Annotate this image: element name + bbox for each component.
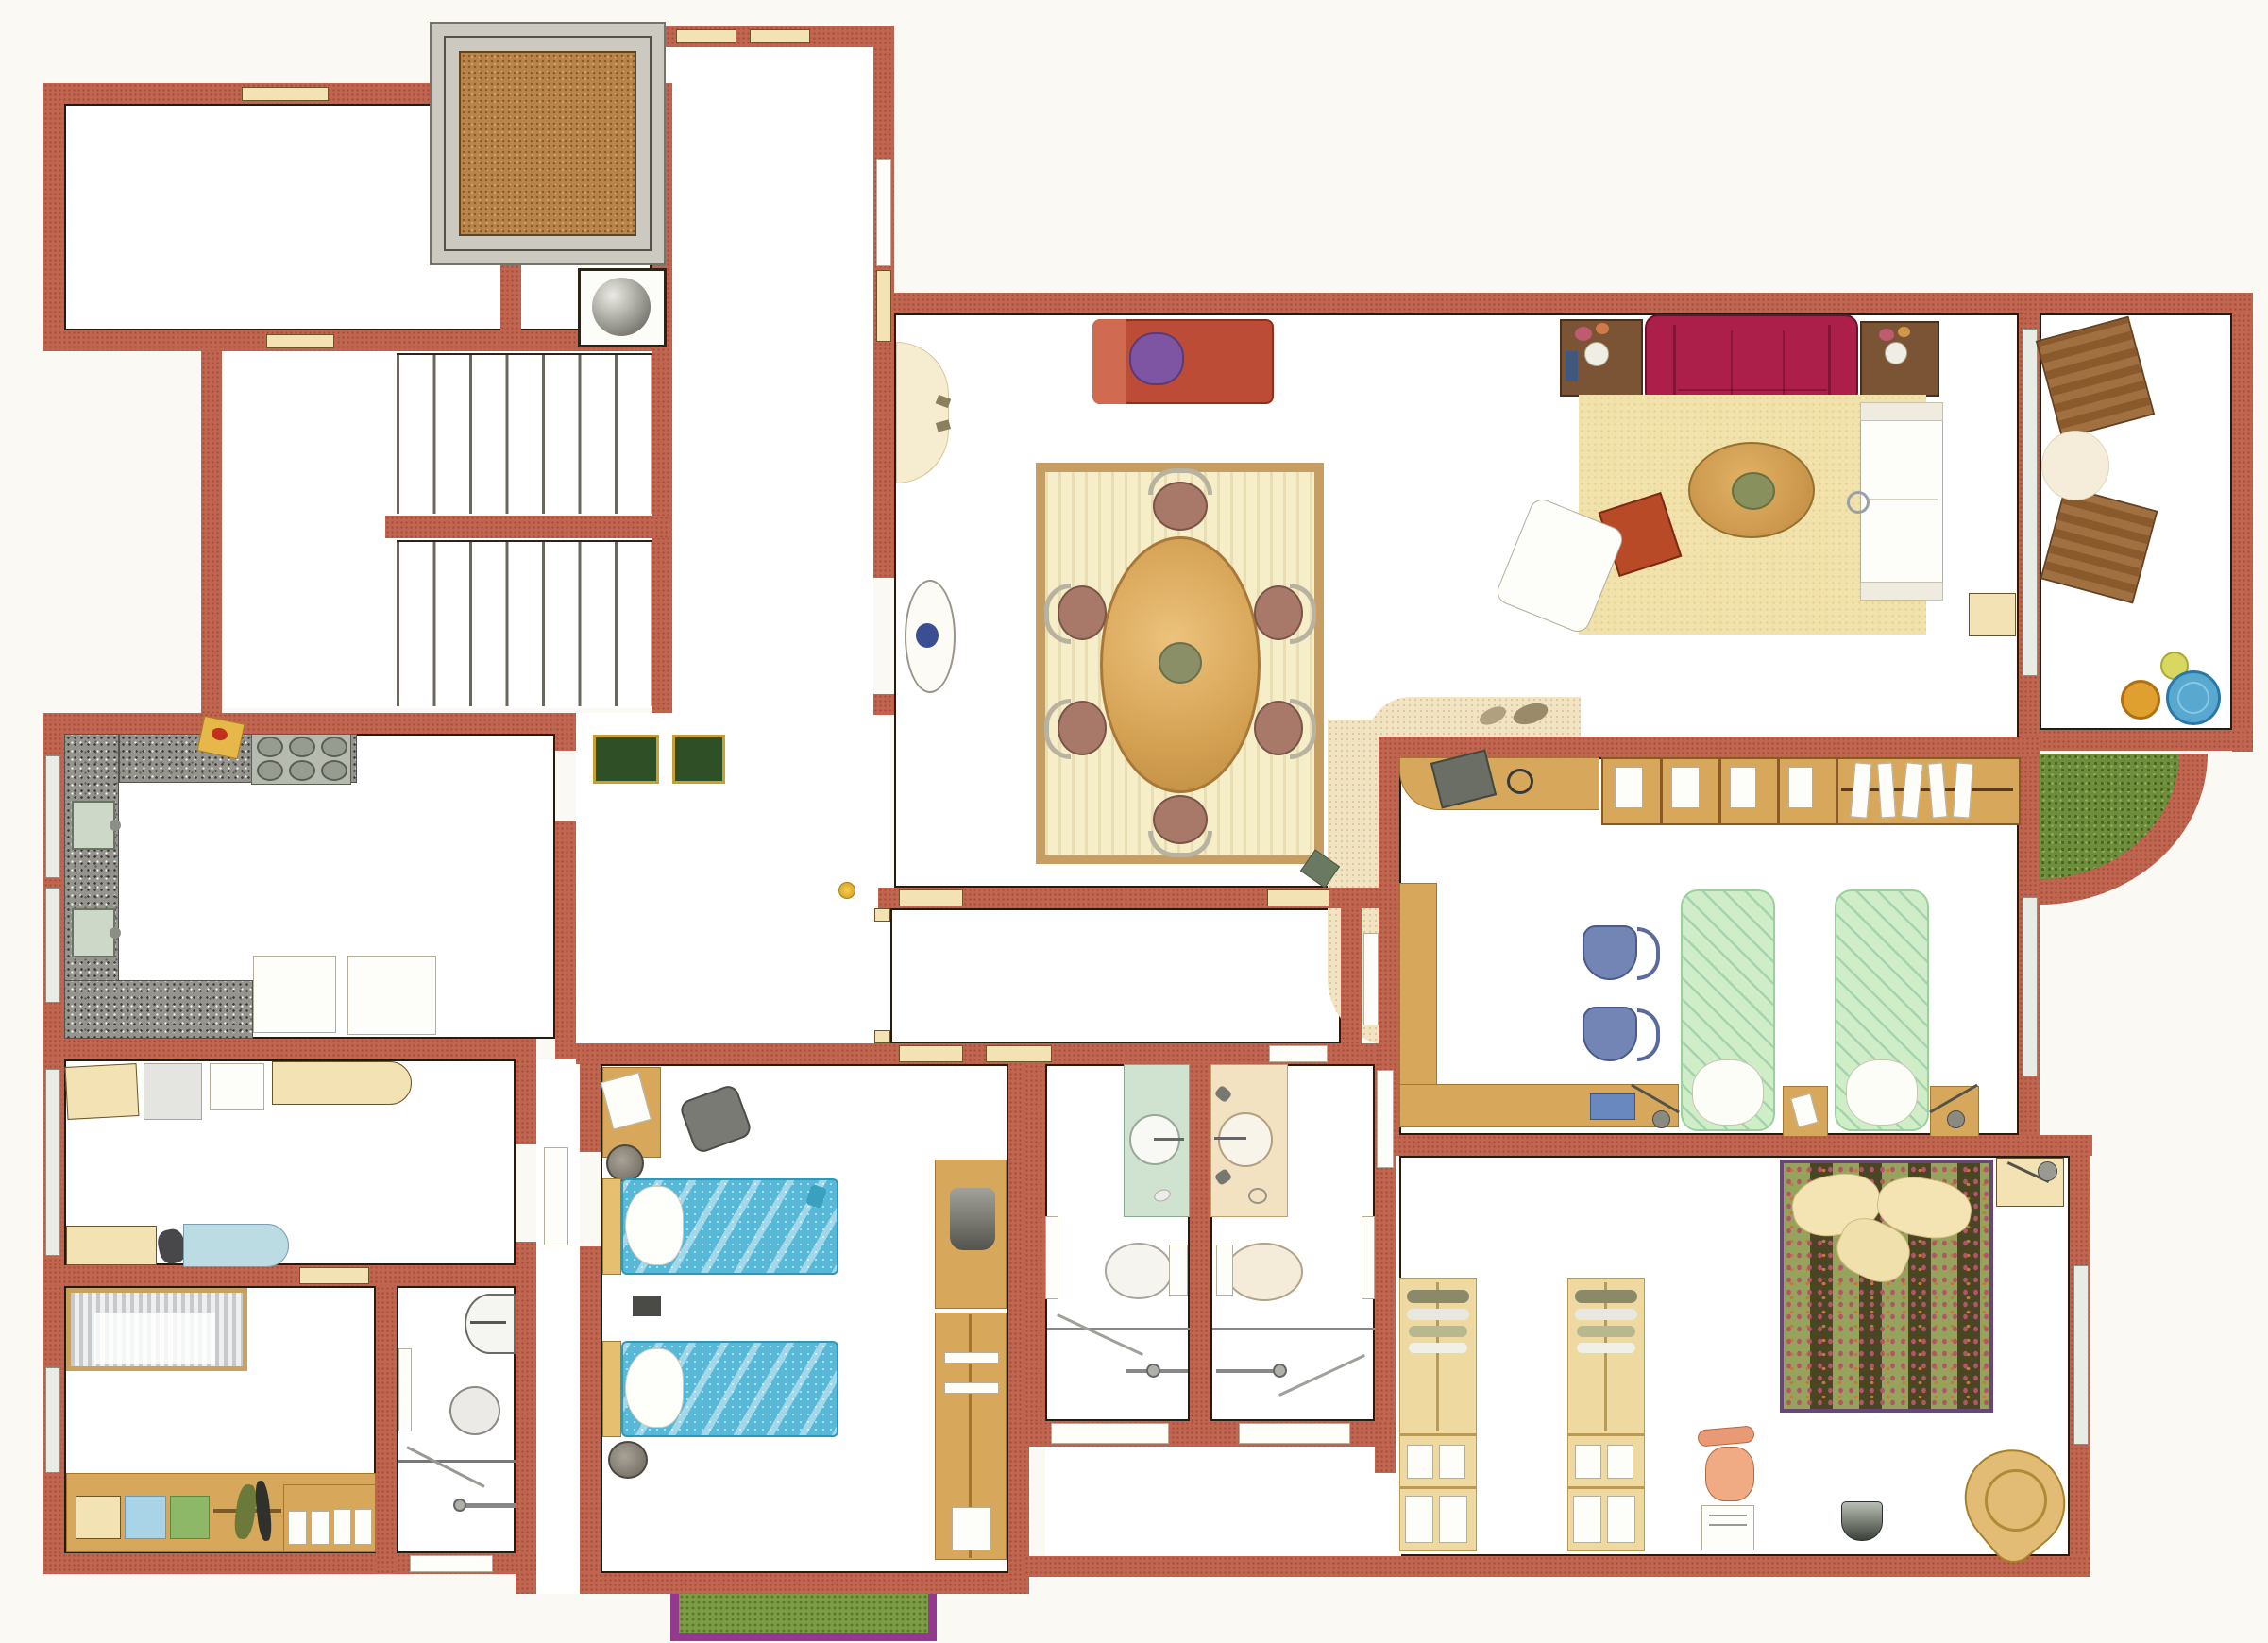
paper-line <box>1709 1524 1747 1526</box>
floor-cushion <box>593 735 659 784</box>
hanging-garment <box>1575 1290 1637 1303</box>
stair-landing-wall <box>385 516 670 538</box>
daybed-cushion <box>1129 332 1184 385</box>
dresser-shelf <box>944 1352 999 1364</box>
shelf-books <box>1671 767 1700 808</box>
window <box>750 29 810 43</box>
drawing-desk <box>1701 1505 1754 1550</box>
stove-burner <box>257 737 283 757</box>
guest-bed-blanket <box>94 1313 215 1364</box>
laundry-cabinet <box>210 1063 264 1110</box>
drinking-glass <box>1847 491 1870 514</box>
door <box>1377 1070 1394 1168</box>
wall-segment <box>201 351 222 713</box>
sofa-white <box>1860 402 1943 601</box>
flower-pot <box>838 882 855 899</box>
wall-segment <box>2019 730 2253 751</box>
floor-mat <box>66 1226 157 1265</box>
sofa-white-seam <box>1866 499 1938 500</box>
lift-motor-sphere <box>592 278 651 336</box>
coffee-table-centerpiece <box>1732 472 1775 510</box>
pillow <box>625 1186 684 1265</box>
daybed-arm <box>1092 319 1126 404</box>
hanging-garment <box>1409 1343 1467 1353</box>
wardrobe-shelf-line <box>1399 1486 1477 1489</box>
door-sill <box>899 889 963 906</box>
wall-segment <box>555 821 576 1059</box>
wall-segment <box>1024 1556 2090 1577</box>
books <box>1566 351 1578 381</box>
door-sill <box>986 1045 1052 1062</box>
door-sill <box>1267 889 1329 906</box>
sofa-seam <box>1731 330 1733 397</box>
door <box>1269 1045 1328 1062</box>
bath-shelf <box>1045 1216 1058 1299</box>
hanging-garment <box>1407 1290 1469 1303</box>
wall-segment <box>516 1059 536 1144</box>
entrance-doormat <box>670 1594 937 1641</box>
wall-segment <box>2232 313 2253 752</box>
wall-segment <box>873 694 894 715</box>
shower-line <box>1212 1328 1375 1330</box>
closet-stack <box>76 1496 121 1539</box>
towel-rod <box>461 1503 516 1508</box>
sofa-seam <box>1783 330 1785 397</box>
faucet <box>110 927 121 939</box>
desk-bottom <box>1399 1084 1679 1127</box>
reading-lamp <box>1652 1110 1670 1128</box>
wardrobe-box <box>1573 1496 1601 1543</box>
dresser-shelf <box>944 1382 999 1394</box>
wall-segment <box>873 313 894 578</box>
wall-segment <box>1379 1135 2092 1156</box>
master-room-ext-floor <box>1045 1447 1401 1556</box>
laundry-cabinet <box>65 1063 140 1120</box>
shelf-divider <box>1660 759 1663 823</box>
door <box>1051 1423 1169 1444</box>
tv-unit <box>950 1188 995 1250</box>
bed-headboard <box>602 1341 621 1437</box>
bath-shelf <box>398 1348 412 1431</box>
corridor-floor <box>890 908 1341 1043</box>
shelf-books <box>1788 767 1813 808</box>
sofa-seam <box>1673 325 1676 397</box>
shelf-divider <box>1777 759 1780 823</box>
plant-pot-inner <box>2177 682 2209 714</box>
window <box>45 755 60 878</box>
shelf-books <box>1615 767 1643 808</box>
elevator-cab <box>459 51 636 236</box>
pillow <box>1846 1059 1918 1126</box>
hanging-garment <box>1409 1326 1467 1337</box>
bath-sink-round <box>1218 1112 1273 1167</box>
wall-segment <box>873 293 2253 313</box>
ironing-board <box>183 1224 289 1267</box>
hanging-garment <box>1577 1326 1635 1337</box>
closet-stack <box>125 1496 166 1539</box>
entry-strip-floor <box>666 47 873 313</box>
office-chair-blue <box>1583 1007 1637 1061</box>
window <box>676 29 736 43</box>
reading-lamp <box>1947 1110 1965 1128</box>
pillow <box>1692 1059 1764 1126</box>
wall-segment <box>43 1553 397 1574</box>
door <box>876 159 891 266</box>
paper-line <box>1709 1515 1747 1516</box>
stove-burner <box>321 737 347 757</box>
closet-box <box>288 1511 307 1545</box>
plant-vase <box>1841 1501 1883 1541</box>
door-sill <box>874 1030 890 1043</box>
sofa-white-arm <box>1860 402 1943 421</box>
flowers <box>1898 327 1910 337</box>
stove-burner <box>257 760 283 781</box>
wall-segment <box>1341 908 1362 1043</box>
laundry-counter <box>272 1061 412 1105</box>
toilet-tank <box>1169 1245 1188 1296</box>
wardrobe-shelf-line <box>1399 1433 1477 1436</box>
bath-shelf <box>1362 1216 1375 1299</box>
kitchen-counter-left <box>64 734 119 1017</box>
door <box>1239 1423 1350 1444</box>
stool <box>606 1144 644 1182</box>
balcony-glass-door <box>2023 329 2038 676</box>
wardrobe-box <box>1439 1496 1467 1543</box>
pillow <box>625 1348 684 1428</box>
upper-hall-floor <box>672 313 873 713</box>
stove-burner <box>321 760 347 781</box>
console-vase <box>916 623 939 648</box>
wall-segment <box>43 83 64 351</box>
window <box>45 888 60 1003</box>
wardrobe-rod <box>1604 1282 1607 1431</box>
study-desk <box>1399 757 1599 810</box>
closet-stack <box>170 1496 210 1539</box>
vase <box>1584 342 1609 366</box>
door-sill <box>299 1267 369 1284</box>
wall-segment <box>580 1573 1029 1594</box>
bed-headboard <box>602 1178 621 1275</box>
reading-lamp <box>2038 1161 2057 1181</box>
toilet-tank <box>1216 1245 1233 1296</box>
flowers <box>1596 323 1609 334</box>
wardrobe-box <box>1439 1445 1465 1479</box>
wardrobe-rod <box>1436 1282 1439 1431</box>
flowers <box>1879 329 1894 341</box>
toilet <box>1105 1243 1173 1299</box>
balcony-table <box>2041 431 2109 500</box>
wardrobe-box <box>1575 1445 1601 1479</box>
dresser-box <box>952 1507 991 1550</box>
desk-chair-seat <box>1705 1447 1754 1501</box>
wall-segment <box>516 1242 536 1594</box>
door <box>410 1555 493 1572</box>
wall-segment <box>43 1039 536 1059</box>
floor-plan <box>0 0 2268 1643</box>
refrigerator <box>347 956 436 1035</box>
faucet <box>110 820 121 831</box>
wardrobe-box <box>1405 1496 1433 1543</box>
staircase-upper-flight <box>397 353 652 514</box>
window <box>266 334 334 348</box>
closet-box <box>333 1509 351 1545</box>
toilet <box>449 1386 500 1435</box>
shower-knob <box>453 1499 466 1512</box>
window <box>242 87 329 101</box>
wardrobe-shelf-line <box>1567 1486 1645 1489</box>
closet-box <box>354 1509 372 1545</box>
plant-pot <box>2121 680 2160 720</box>
towel-rod <box>1216 1369 1277 1373</box>
toiletry-ring <box>1248 1188 1267 1204</box>
hanging-garment <box>1407 1309 1469 1320</box>
shower-knob <box>1146 1364 1160 1378</box>
office-chair-blue <box>1583 925 1637 980</box>
kitchen-counter-bottom <box>64 980 253 1039</box>
closet-box <box>311 1511 330 1545</box>
sofa-white-arm <box>1860 582 1943 601</box>
vase <box>1885 342 1907 364</box>
nightstand <box>633 1296 661 1316</box>
hanging-garment <box>1577 1343 1635 1353</box>
window <box>2073 1265 2089 1445</box>
wall-segment <box>1024 1064 1045 1447</box>
wall-segment <box>376 1286 397 1574</box>
dishwasher <box>253 956 336 1033</box>
wardrobe-box <box>1607 1496 1635 1543</box>
faucet-line <box>1154 1138 1184 1141</box>
stool <box>608 1441 648 1479</box>
staircase-lower-flight <box>397 540 652 706</box>
wardrobe-box <box>1607 1445 1633 1479</box>
stove-burner <box>289 760 315 781</box>
table-centerpiece <box>1159 642 1202 684</box>
wall-segment <box>1190 1064 1210 1421</box>
shelf-divider <box>1718 759 1721 823</box>
door-sill <box>899 1045 963 1062</box>
bath-sink <box>465 1294 516 1354</box>
shelf-divider <box>1836 759 1838 823</box>
keyboard <box>1590 1093 1635 1120</box>
wall-segment <box>43 713 576 734</box>
window <box>45 1367 60 1473</box>
wardrobe-box <box>1407 1445 1433 1479</box>
window <box>876 270 891 342</box>
wall-segment <box>555 713 576 751</box>
wall-segment <box>500 264 521 351</box>
hanging-garment <box>1575 1309 1637 1320</box>
door-sill <box>874 908 890 922</box>
wall-segment <box>43 1265 536 1286</box>
wardrobe-shelf-line <box>1567 1433 1645 1436</box>
window <box>2023 897 2038 1076</box>
toilet <box>1226 1243 1303 1301</box>
headphones <box>1507 769 1533 794</box>
door <box>544 1147 568 1245</box>
wall-segment <box>580 1246 601 1594</box>
laundry-machine <box>144 1063 202 1120</box>
faucet-line <box>470 1321 506 1324</box>
sofa-crimson <box>1645 314 1858 405</box>
shower-knob <box>1273 1364 1287 1378</box>
flowers <box>1575 327 1592 341</box>
sofa-seam <box>1678 389 1827 391</box>
shelf-books <box>1730 767 1756 808</box>
door-strip-floor <box>536 1059 580 1594</box>
shower-line <box>1047 1328 1190 1330</box>
window <box>45 1069 60 1256</box>
stove-burner <box>289 737 315 757</box>
floor-cushion <box>672 735 725 784</box>
door <box>1363 933 1379 1025</box>
sofa-seam <box>1828 325 1831 397</box>
faucet-line <box>1214 1137 1246 1140</box>
sideboard <box>1969 593 2016 636</box>
shower-line <box>398 1460 516 1463</box>
